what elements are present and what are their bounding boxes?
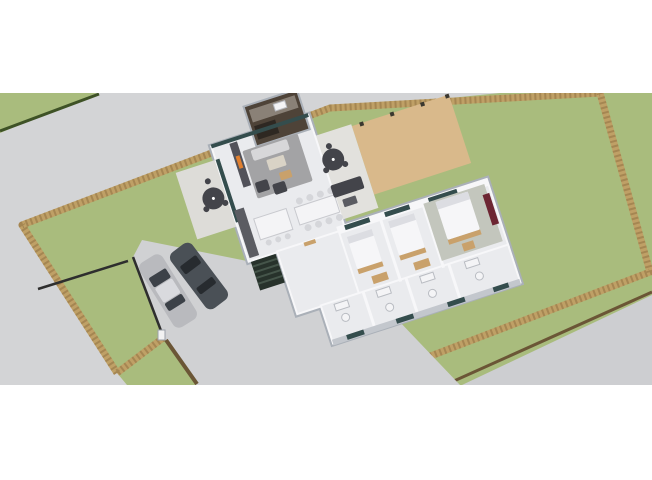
gate-post (158, 330, 165, 340)
bottom-white-band (0, 385, 652, 480)
scene-svg (0, 0, 652, 480)
render-canvas (0, 0, 652, 480)
top-white-band (0, 0, 652, 93)
